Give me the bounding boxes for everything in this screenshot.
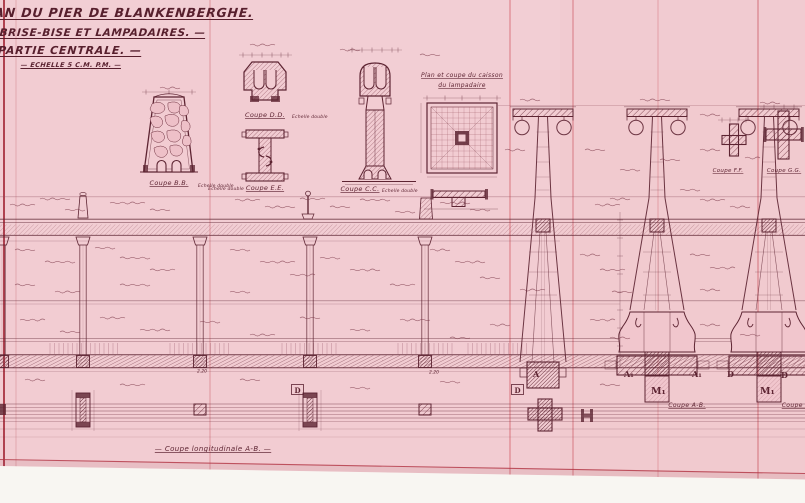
marker-m1-right: M₁ bbox=[760, 386, 775, 397]
deck-beam-hatch bbox=[0, 225, 805, 236]
title-line-1: AN DU PIER DE BLANKENBERGHE. bbox=[0, 5, 254, 20]
marker-d-mid: D bbox=[727, 369, 734, 379]
drawing-canvas: Coupe B.B. Echelle double Coupe D.D. Ech… bbox=[0, 0, 805, 503]
note-coupe-cc: Echelle double bbox=[382, 188, 418, 194]
title-line-2: BRISE-BISE ET LAMPADAIRES. — bbox=[0, 27, 252, 39]
label-coupe-cc: Coupe C.C. bbox=[340, 185, 379, 193]
marker-d-box-left: D bbox=[295, 386, 301, 395]
label-coupe-longitudinale: — Coupe longitudinale A-B. — bbox=[155, 445, 271, 453]
title-scale-note: — ECHELLE 5 C.M. P.M. — bbox=[20, 61, 249, 69]
marker-a1-left: A₁ bbox=[623, 369, 634, 379]
title-block: AN DU PIER DE BLANKENBERGHE. BRISE-BISE … bbox=[0, 5, 254, 69]
label-coupe-bb: Coupe B.B. bbox=[150, 179, 189, 187]
blueprint-photo: Coupe B.B. Echelle double Coupe D.D. Ech… bbox=[0, 0, 805, 503]
marker-d-right: D bbox=[781, 370, 788, 380]
note-coupe-dd: Echelle double bbox=[292, 114, 328, 120]
paper-background bbox=[0, 0, 805, 503]
marker-a: A bbox=[532, 369, 540, 379]
label-plan-caisson-1: Plan et coupe du caisson bbox=[421, 72, 503, 79]
dim-220-right: 2.20 bbox=[429, 370, 439, 376]
label-coupe-ab-right: Coupe A- bbox=[782, 402, 805, 409]
label-coupe-ab-left: Coupe A-B. bbox=[668, 402, 705, 409]
section-coupe-dd bbox=[244, 62, 286, 102]
marker-m1-left: M₁ bbox=[651, 386, 666, 397]
label-coupe-dd: Coupe D.D. bbox=[245, 111, 285, 119]
label-coupe-gg: Coupe G.G. bbox=[767, 168, 801, 174]
label-coupe-ee: Coupe E.E. bbox=[246, 184, 284, 192]
note-coupe-ee: Echelle double bbox=[208, 186, 244, 192]
label-coupe-ff: Coupe F.F. bbox=[713, 168, 744, 174]
marker-d-box-right: D bbox=[515, 386, 521, 395]
dim-220-left: 2.20 bbox=[197, 369, 207, 375]
title-line-3: PARTIE CENTRALE. — bbox=[0, 44, 251, 57]
label-plan-caisson-2: du lampadaire bbox=[438, 82, 485, 89]
marker-a1-mid: A₁ bbox=[691, 369, 702, 379]
